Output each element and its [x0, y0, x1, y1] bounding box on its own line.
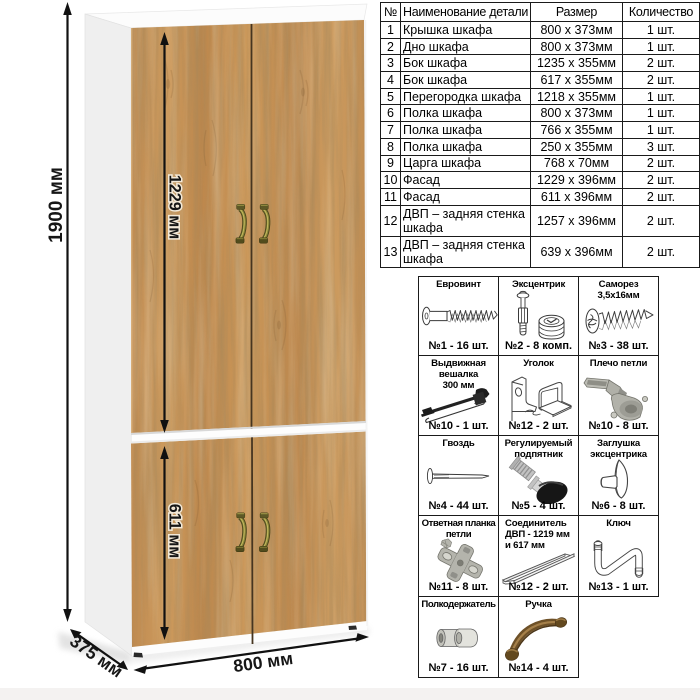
- svg-text:611 мм: 611 мм: [166, 504, 184, 559]
- svg-text:800 мм: 800 мм: [232, 648, 294, 676]
- svg-text:1229 мм: 1229 мм: [166, 175, 184, 239]
- svg-text:1900 мм: 1900 мм: [46, 167, 67, 243]
